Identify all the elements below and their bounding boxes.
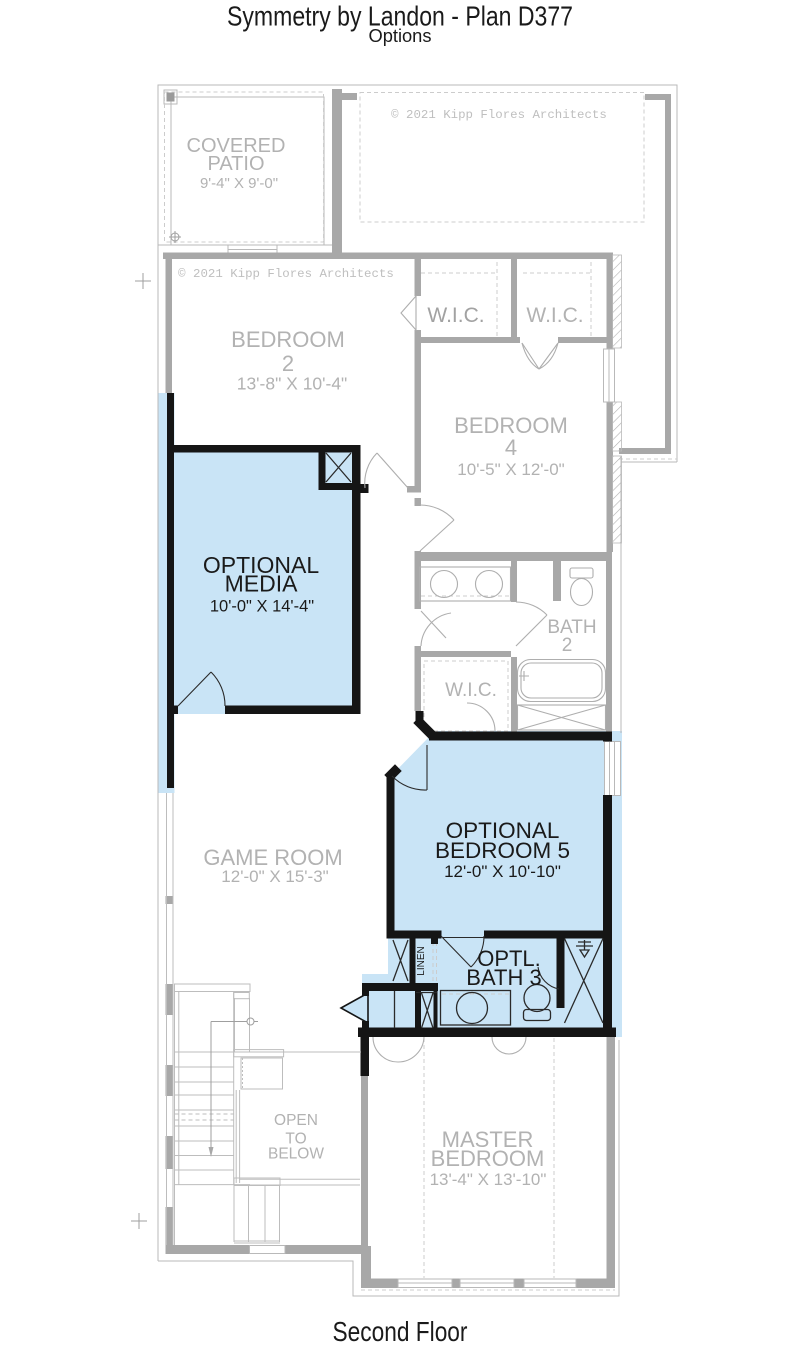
svg-text:2: 2 [562, 635, 573, 656]
svg-text:10'-5" X 12'-0": 10'-5" X 12'-0" [457, 460, 564, 479]
svg-text:W.I.C.: W.I.C. [427, 304, 484, 327]
svg-text:OPEN: OPEN [274, 1112, 318, 1129]
svg-text:W.I.C.: W.I.C. [526, 304, 583, 327]
svg-text:4: 4 [505, 435, 517, 460]
svg-text:Second Floor: Second Floor [333, 1316, 468, 1347]
svg-text:BEDROOM 5: BEDROOM 5 [435, 838, 570, 863]
svg-text:9'-4" X 9'-0": 9'-4" X 9'-0" [200, 175, 278, 192]
svg-text:13'-8" X 10'-4": 13'-8" X 10'-4" [237, 374, 348, 394]
svg-text:BATH 3: BATH 3 [466, 965, 541, 990]
svg-text:LINEN: LINEN [416, 946, 427, 975]
svg-text:© 2021 Kipp Flores Architects: © 2021 Kipp Flores Architects [391, 108, 607, 122]
svg-text:BELOW: BELOW [268, 1146, 324, 1163]
svg-text:MEDIA: MEDIA [225, 571, 299, 597]
svg-text:12'-0" X 15'-3": 12'-0" X 15'-3" [221, 867, 328, 886]
svg-text:2: 2 [282, 351, 294, 376]
svg-text:12'-0" X 10'-10": 12'-0" X 10'-10" [444, 862, 561, 881]
svg-text:PATIO: PATIO [207, 153, 264, 175]
svg-text:© 2021 Kipp Flores Architects: © 2021 Kipp Flores Architects [178, 267, 394, 281]
svg-text:BEDROOM: BEDROOM [231, 327, 345, 352]
svg-text:W.I.C.: W.I.C. [445, 680, 497, 701]
svg-text:10'-0" X 14'-4": 10'-0" X 14'-4" [210, 598, 314, 616]
svg-text:Options: Options [368, 25, 431, 46]
svg-text:BEDROOM: BEDROOM [431, 1146, 545, 1171]
svg-text:13'-4" X 13'-10": 13'-4" X 13'-10" [430, 1170, 547, 1189]
